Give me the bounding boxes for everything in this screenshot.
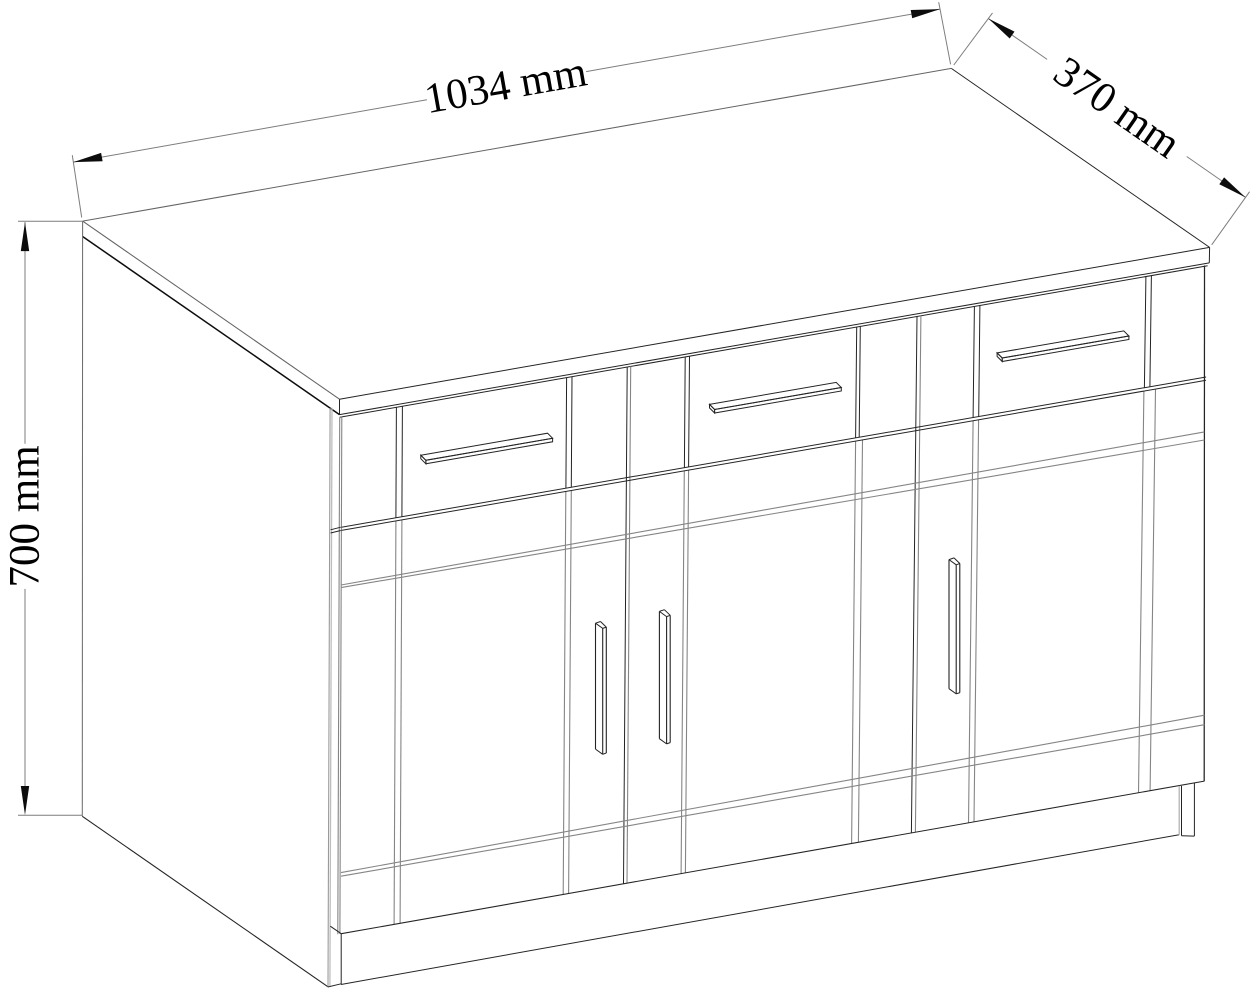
- svg-text:700 mm: 700 mm: [1, 445, 48, 587]
